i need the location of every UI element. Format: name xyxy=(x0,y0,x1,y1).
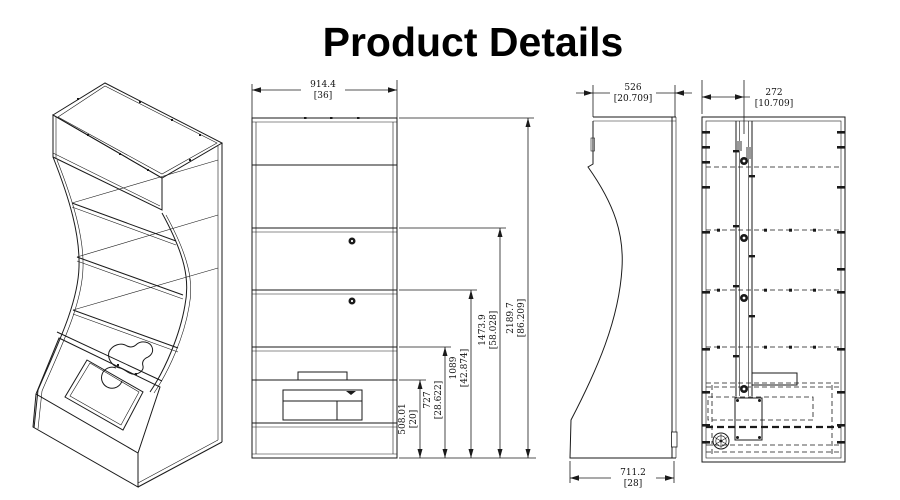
svg-text:[20]: [20] xyxy=(409,410,419,428)
front-view-shelf-lines xyxy=(252,165,397,427)
front-width-in: [36] xyxy=(314,91,332,101)
front-width-dimension: 914.4 [36] xyxy=(252,79,397,124)
svg-text:727: 727 xyxy=(423,391,433,408)
front-view-shelf-pins xyxy=(349,238,356,305)
section-outline xyxy=(702,117,845,462)
iso-marquee-face xyxy=(53,115,162,210)
front-width-mm: 914.4 xyxy=(310,80,336,90)
iso-screw-dots xyxy=(77,98,201,171)
section-mount-box xyxy=(735,398,762,440)
side-depth-mm: 526 xyxy=(624,83,641,93)
section-shelf-ticks xyxy=(717,229,816,349)
section-fan xyxy=(713,433,729,449)
iso-shelves xyxy=(72,160,218,352)
side-depth-in: [20.709] xyxy=(614,94,653,104)
side-view: 526 [20.709] 711.2 [28] xyxy=(570,82,692,489)
iso-base xyxy=(33,394,138,487)
iso-left-curve xyxy=(38,157,79,390)
section-top-dimension: 272 [10.709] xyxy=(702,80,793,134)
front-tray xyxy=(298,372,347,380)
front-height-dim-727: 727 [28.622] xyxy=(423,347,448,458)
section-view: 272 [10.709] xyxy=(702,80,845,462)
technical-drawing-canvas: Product Details xyxy=(0,0,900,500)
section-hidden-shelves xyxy=(706,167,841,455)
side-back-notch xyxy=(672,432,678,447)
iso-controller-cutout xyxy=(109,342,153,374)
isometric-view xyxy=(33,83,222,487)
svg-text:[28.622]: [28.622] xyxy=(434,381,444,420)
svg-text:[58.028]: [58.028] xyxy=(489,311,499,350)
front-view: 914.4 [36] 508.01 [20] 727 xyxy=(252,79,536,458)
side-top-dimension: 526 [20.709] xyxy=(576,82,692,117)
side-profile-curve xyxy=(570,121,676,458)
svg-text:1473.9: 1473.9 xyxy=(478,314,488,346)
svg-text:1089: 1089 xyxy=(449,356,459,379)
front-keyboard-panel xyxy=(283,390,362,420)
section-rail-in: [10.709] xyxy=(755,99,794,109)
front-height-dim-2189: 2189.7 [86.209] xyxy=(506,118,531,458)
front-view-outline xyxy=(252,118,397,458)
front-height-dim-1473: 1473.9 [58.028] xyxy=(478,228,503,458)
iso-tray-edge xyxy=(57,332,162,381)
section-rail-mm: 272 xyxy=(765,88,782,98)
side-base-mm: 711.2 xyxy=(620,468,646,478)
svg-text:[86.209]: [86.209] xyxy=(517,299,527,338)
front-height-dim-508: 508.01 [20] xyxy=(398,380,423,458)
side-bottom-dimension: 711.2 [28] xyxy=(570,461,674,489)
page-title: Product Details xyxy=(323,19,624,65)
svg-text:2189.7: 2189.7 xyxy=(506,302,516,334)
side-base-in: [28] xyxy=(624,479,642,489)
svg-text:[42.874]: [42.874] xyxy=(460,349,470,388)
section-cam-fittings xyxy=(740,157,748,393)
iso-right-curve xyxy=(150,213,187,392)
front-height-dim-1089: 1089 [42.874] xyxy=(449,290,474,458)
svg-text:508.01: 508.01 xyxy=(398,403,408,435)
front-height-dimensions: 508.01 [20] 727 [28.622] 1089 [42.874] xyxy=(398,118,536,458)
